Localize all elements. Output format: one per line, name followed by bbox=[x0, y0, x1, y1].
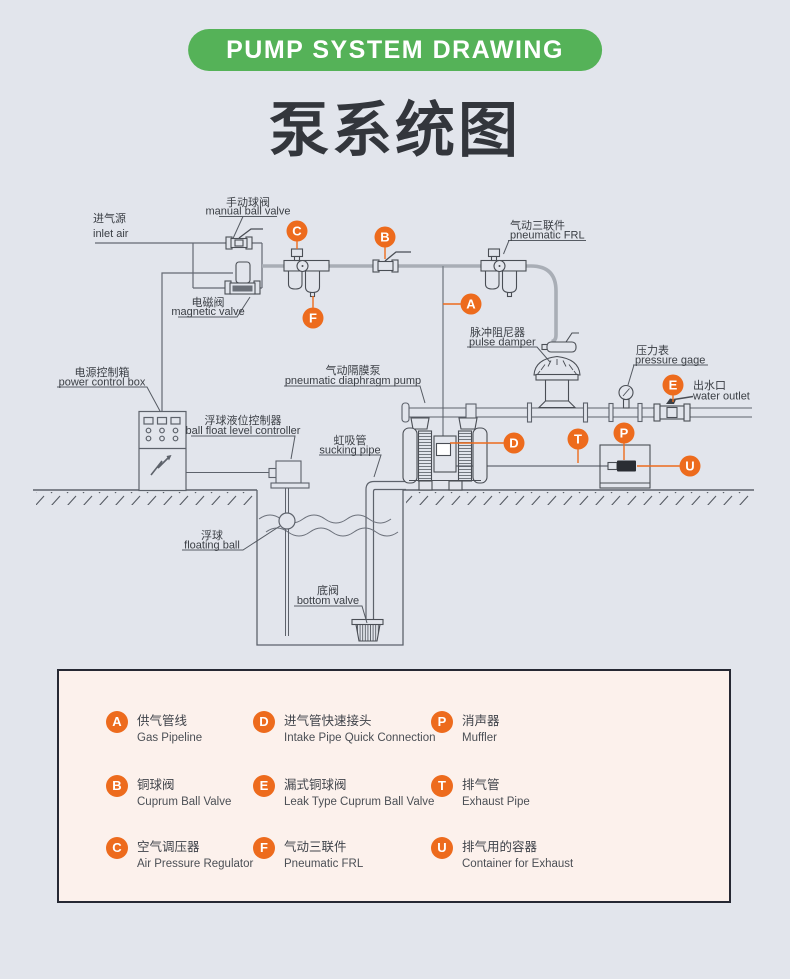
legend-item-container-for-exhaust: U 排气用的容器 Container for Exhaust bbox=[431, 837, 573, 871]
legend-en: Muffler bbox=[462, 732, 500, 745]
legend-badge-F: F bbox=[253, 837, 275, 859]
legend-zh: 气动三联件 bbox=[284, 840, 363, 854]
svg-text:B: B bbox=[380, 230, 389, 245]
legend-box: A 供气管线 Gas Pipeline D 进气管快速接头 Intake Pip… bbox=[57, 669, 731, 903]
legend-zh: 排气管 bbox=[462, 778, 530, 792]
label-manual-ball-valve-en: manual ball valve bbox=[206, 206, 291, 218]
legend-item-leak-type-cuprum-ball-valve: E 漏式铜球阀 Leak Type Cuprum Ball Valve bbox=[253, 775, 434, 809]
legend-zh: 消声器 bbox=[462, 714, 500, 728]
legend-badge-A: A bbox=[106, 711, 128, 733]
marker-T: T bbox=[568, 429, 589, 450]
legend-en: Cuprum Ball Valve bbox=[137, 796, 231, 809]
sucking-pipe-lines bbox=[366, 482, 406, 621]
legend-en: Gas Pipeline bbox=[137, 732, 202, 745]
float-rod bbox=[286, 488, 289, 636]
svg-text:C: C bbox=[292, 224, 302, 239]
pneumatic-diaphragm-pump-shape bbox=[403, 418, 487, 490]
legend-en: Container for Exhaust bbox=[462, 858, 573, 871]
marker-F: F bbox=[303, 308, 324, 329]
label-floating-ball-en: floating ball bbox=[184, 540, 240, 552]
legend-zh: 漏式铜球阀 bbox=[284, 778, 434, 792]
legend-zh: 进气管快速接头 bbox=[284, 714, 436, 728]
legend-item-cuprum-ball-valve: B 铜球阀 Cuprum Ball Valve bbox=[106, 775, 231, 809]
page: PUMP SYSTEM DRAWING 泵系统图 bbox=[0, 0, 790, 979]
legend-item-muffler: P 消声器 Muffler bbox=[431, 711, 500, 745]
legend-zh: 铜球阀 bbox=[137, 778, 231, 792]
label-water-outlet-en: water outlet bbox=[692, 391, 750, 403]
ball-float-level-controller-shape bbox=[186, 461, 309, 488]
marker-E: E bbox=[663, 375, 684, 396]
legend-en: Exhaust Pipe bbox=[462, 796, 530, 809]
label-bottom-valve-en: bottom valve bbox=[297, 595, 359, 607]
svg-text:F: F bbox=[309, 311, 317, 326]
label-ball-float-level-controller-en: ball float level controller bbox=[186, 425, 301, 437]
label-pressure-gage-en: pressure gage bbox=[635, 355, 705, 367]
marker-A: A bbox=[461, 294, 482, 315]
legend-en: Air Pressure Regulator bbox=[137, 858, 253, 871]
svg-text:T: T bbox=[574, 432, 582, 447]
label-power-control-box-en: power control box bbox=[59, 377, 146, 389]
cuprum-ball-valve-shape bbox=[373, 252, 411, 272]
svg-text:U: U bbox=[685, 459, 694, 474]
legend-item-gas-pipeline: A 供气管线 Gas Pipeline bbox=[106, 711, 202, 745]
manual-ball-valve-shape bbox=[226, 229, 263, 249]
air-frl-unit bbox=[284, 249, 329, 297]
marker-C: C bbox=[287, 221, 308, 242]
label-pneumatic-frl-en: pneumatic FRL bbox=[510, 230, 585, 242]
svg-text:P: P bbox=[620, 426, 629, 441]
label-pulse-damper-en: pulse damper bbox=[469, 337, 536, 349]
legend-badge-T: T bbox=[431, 775, 453, 797]
legend-badge-D: D bbox=[253, 711, 275, 733]
marker-D: D bbox=[504, 433, 525, 454]
label-sucking-pipe-en: sucking pipe bbox=[319, 445, 380, 457]
pulse-damper-shape bbox=[534, 333, 580, 408]
legend-item-pneumatic-frl: F 气动三联件 Pneumatic FRL bbox=[253, 837, 363, 871]
label-magnetic-valve-en: magnetic valve bbox=[171, 306, 244, 318]
legend-badge-E: E bbox=[253, 775, 275, 797]
legend-zh: 供气管线 bbox=[137, 714, 202, 728]
label-pneumatic-diaphragm-pump-en: pneumatic diaphragm pump bbox=[285, 375, 421, 387]
legend-item-exhaust-pipe: T 排气管 Exhaust Pipe bbox=[431, 775, 530, 809]
legend-en: Pneumatic FRL bbox=[284, 858, 363, 871]
label-inlet-air-en: inlet air bbox=[93, 228, 129, 240]
power-control-box-shape bbox=[139, 412, 186, 491]
svg-text:A: A bbox=[466, 297, 476, 312]
legend-en: Intake Pipe Quick Connection bbox=[284, 732, 436, 745]
ground bbox=[33, 490, 754, 505]
marker-B: B bbox=[375, 227, 396, 248]
pneumatic-frl-shape bbox=[481, 249, 526, 297]
floating-ball-shape bbox=[279, 513, 295, 529]
legend-badge-C: C bbox=[106, 837, 128, 859]
marker-P: P bbox=[614, 423, 635, 444]
svg-text:E: E bbox=[669, 378, 678, 393]
legend-item-air-pressure-regulator: C 空气调压器 Air Pressure Regulator bbox=[106, 837, 253, 871]
marker-U: U bbox=[680, 456, 701, 477]
pressure-gage-shape bbox=[619, 386, 633, 409]
legend-zh: 空气调压器 bbox=[137, 840, 253, 854]
discharge-pipe bbox=[402, 403, 752, 422]
legend-item-intake-pipe-quick-connection: D 进气管快速接头 Intake Pipe Quick Connection bbox=[253, 711, 436, 745]
legend-badge-U: U bbox=[431, 837, 453, 859]
bottom-valve-shape bbox=[352, 620, 383, 642]
svg-text:D: D bbox=[509, 436, 518, 451]
legend-badge-P: P bbox=[431, 711, 453, 733]
legend-zh: 排气用的容器 bbox=[462, 840, 573, 854]
magnetic-valve-shape bbox=[225, 262, 260, 294]
legend-en: Leak Type Cuprum Ball Valve bbox=[284, 796, 434, 809]
legend-badge-B: B bbox=[106, 775, 128, 797]
label-inlet-air-zh: 进气源 bbox=[93, 211, 126, 225]
